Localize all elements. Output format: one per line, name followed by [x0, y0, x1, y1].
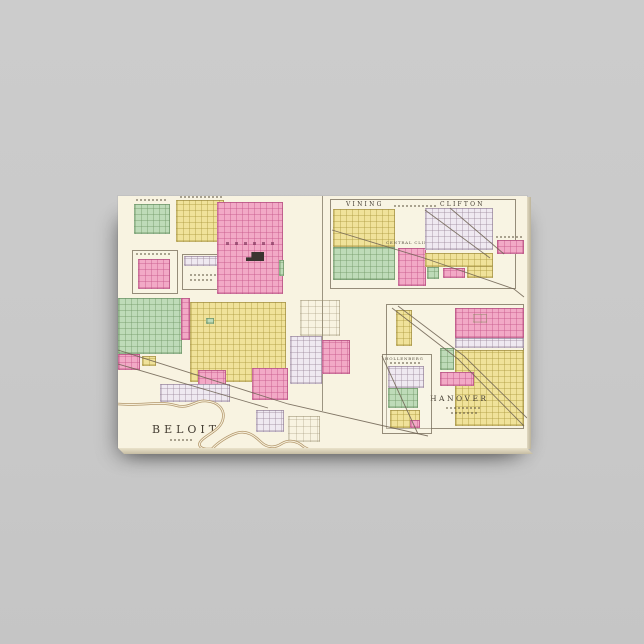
railroad-line	[118, 364, 268, 408]
railroad-line	[450, 208, 504, 254]
railroad-line	[392, 308, 524, 426]
railroad-line	[118, 350, 428, 436]
product-photo: BELOIT VINING CLIFTON CENTRAL CLIFTON	[0, 0, 644, 644]
canvas-right-edge	[527, 197, 531, 449]
railroad-lines	[118, 208, 527, 436]
linework-overlay	[118, 196, 527, 448]
solomon-river	[118, 401, 308, 448]
atlas-map: BELOIT VINING CLIFTON CENTRAL CLIFTON	[118, 196, 527, 448]
canvas-print: BELOIT VINING CLIFTON CENTRAL CLIFTON	[118, 196, 527, 448]
railroad-line	[382, 356, 418, 434]
railroad-line	[332, 230, 524, 297]
railroad-line	[398, 306, 527, 418]
canvas-bottom-edge	[118, 448, 533, 454]
river-water	[118, 401, 308, 448]
river-bank	[118, 401, 308, 448]
